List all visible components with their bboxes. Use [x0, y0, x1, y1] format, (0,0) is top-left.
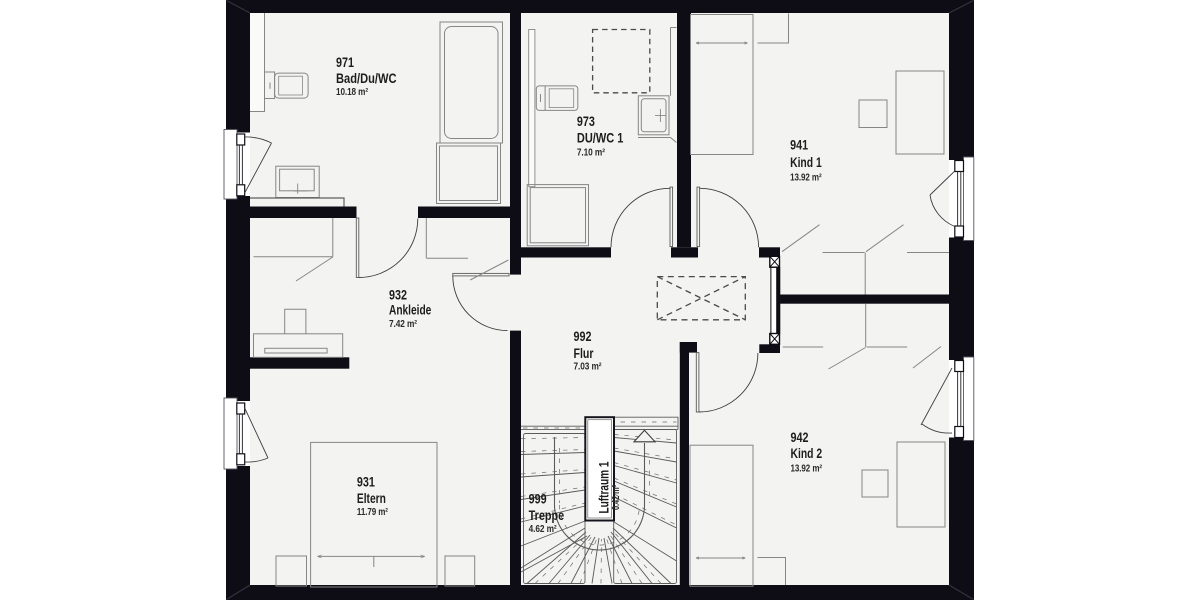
svg-text:932: 932 [389, 287, 407, 302]
svg-text:Ankleide: Ankleide [389, 302, 431, 317]
svg-text:13.92 m²: 13.92 m² [791, 464, 823, 475]
svg-text:941: 941 [790, 138, 808, 153]
svg-text:7.42 m²: 7.42 m² [389, 319, 418, 330]
svg-text:Luftraum 1: Luftraum 1 [597, 461, 612, 513]
svg-text:942: 942 [791, 430, 809, 445]
svg-text:7.10 m²: 7.10 m² [577, 148, 606, 159]
svg-text:Kind 1: Kind 1 [790, 155, 822, 170]
svg-text:999: 999 [529, 491, 547, 506]
svg-text:973: 973 [577, 114, 595, 129]
svg-text:DU/WC 1: DU/WC 1 [577, 130, 624, 145]
svg-text:971: 971 [336, 55, 354, 70]
svg-text:Kind 2: Kind 2 [791, 446, 823, 461]
svg-text:11.79 m²: 11.79 m² [357, 507, 389, 518]
svg-text:4.62 m²: 4.62 m² [529, 524, 558, 535]
svg-text:Flur: Flur [574, 346, 595, 361]
svg-text:Treppe: Treppe [529, 508, 565, 523]
svg-text:13.92 m²: 13.92 m² [790, 172, 822, 183]
svg-text:Bad/Du/WC: Bad/Du/WC [336, 71, 397, 86]
svg-text:Eltern: Eltern [357, 491, 386, 506]
svg-text:0.42 m²: 0.42 m² [611, 484, 622, 510]
svg-text:10.18 m²: 10.18 m² [336, 87, 369, 98]
svg-text:992: 992 [574, 329, 592, 344]
svg-text:7.03 m²: 7.03 m² [574, 362, 603, 373]
svg-text:931: 931 [357, 475, 375, 490]
